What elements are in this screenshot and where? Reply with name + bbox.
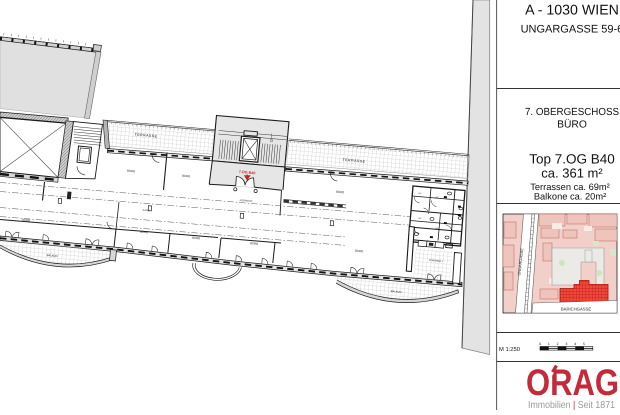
svg-text:ORAG: ORAG [526,362,619,403]
svg-text:A - 1030 WIEN: A - 1030 WIEN [525,3,619,19]
svg-text:BÜRO: BÜRO [127,169,136,174]
svg-text:BÜRO: BÜRO [250,241,259,246]
svg-text:2: 2 [557,342,559,346]
svg-text:3: 3 [565,342,567,346]
svg-text:BÜRO: BÜRO [192,236,201,241]
svg-text:BARICHGASSE: BARICHGASSE [561,307,591,312]
svg-text:Immobilien | Seit 1871: Immobilien | Seit 1871 [528,400,615,410]
svg-text:GANG: GANG [142,209,149,213]
svg-text:Balkone ca. 20m²: Balkone ca. 20m² [534,192,606,202]
svg-text:5: 5 [583,342,585,346]
svg-text:Terrassen ca. 69m²: Terrassen ca. 69m² [530,182,610,192]
svg-text:BÜRO: BÜRO [182,174,191,179]
svg-text:ca. 361 m²: ca. 361 m² [541,166,603,181]
svg-text:Top 7.OG B40: Top 7.OG B40 [529,152,615,167]
svg-text:M 1:250: M 1:250 [499,346,520,353]
svg-text:BÜRO: BÜRO [140,230,149,235]
svg-text:7. OBERGESCHOSS: 7. OBERGESCHOSS [525,107,619,118]
svg-text:BÜRO: BÜRO [336,190,345,195]
svg-text:BÜRO: BÜRO [355,249,364,254]
svg-text:1: 1 [548,342,550,346]
svg-text:4: 4 [574,342,576,346]
svg-text:UNGARGASSE 59-61: UNGARGASSE 59-61 [521,24,620,36]
svg-text:BÜRO: BÜRO [22,218,31,223]
svg-text:BÜRO: BÜRO [557,119,587,131]
svg-text:0: 0 [539,342,541,346]
